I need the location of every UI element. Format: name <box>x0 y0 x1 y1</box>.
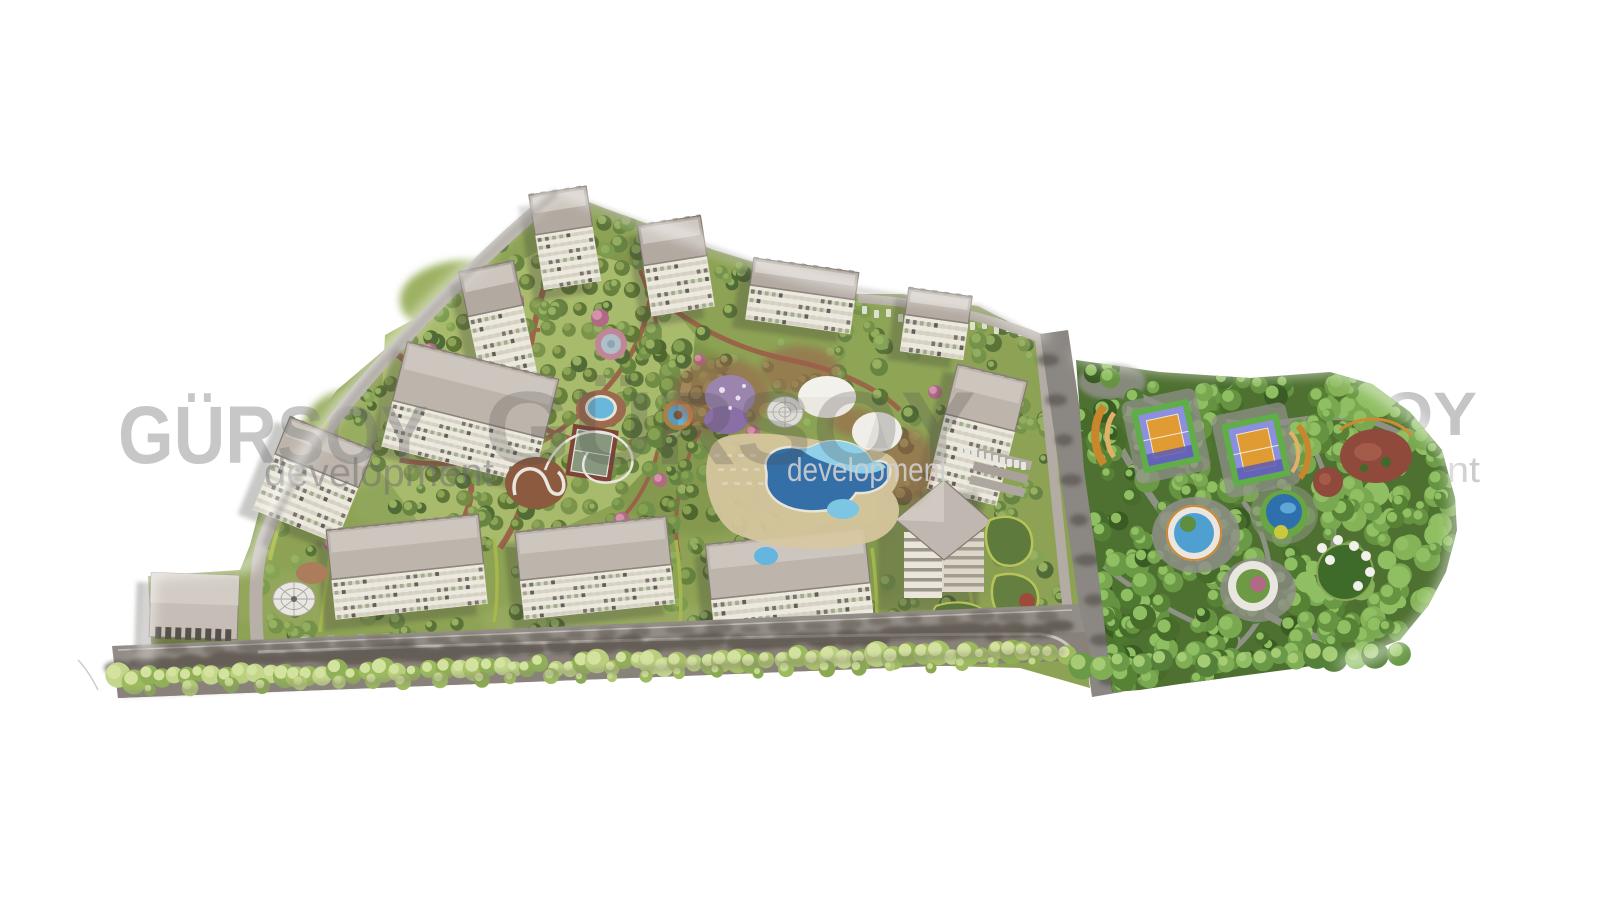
svg-text:development: development <box>787 451 947 488</box>
